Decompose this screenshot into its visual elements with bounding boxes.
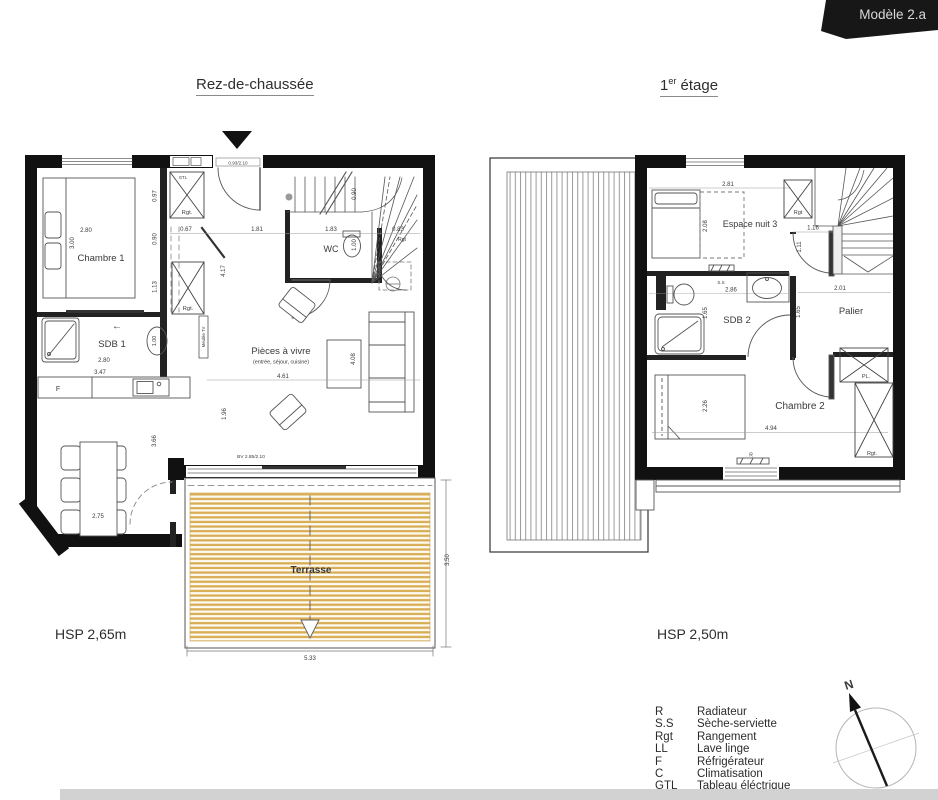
dim: 2.08 — [703, 220, 709, 232]
dim: 4.94 — [765, 426, 777, 432]
gf-sliding-door — [66, 310, 144, 313]
dim: 2.86 — [725, 288, 737, 294]
ff-sdb2-label: SDB 2 — [723, 315, 750, 326]
legend-row: RRadiateur — [655, 706, 790, 718]
legend-label: Climatisation — [697, 768, 763, 780]
ff-rgt-top-label: Rgt — [794, 210, 803, 216]
dim: 0.97 — [153, 190, 159, 202]
ff-door-gap — [789, 234, 797, 276]
dim: 5.33 — [304, 656, 316, 662]
dim: 1.11 — [797, 241, 803, 253]
gf-entry-door-size: 0.93/2.10 — [228, 161, 248, 166]
ff-palier-label: Palier — [839, 306, 863, 317]
dim: 0.90 — [352, 188, 358, 200]
legend-code: S.S — [655, 718, 697, 730]
legend-label: Sèche-serviette — [697, 718, 777, 730]
dim: 1.00 — [352, 239, 358, 251]
ff-rgt-bottom-label: Rgt. — [867, 451, 878, 457]
model-banner-label: Modèle 2.a — [859, 7, 926, 22]
ground-floor-title: Rez-de-chaussée — [196, 76, 314, 96]
legend-code: R — [655, 706, 697, 718]
entrance-arrow-icon — [222, 131, 252, 149]
dim: 2.81 — [722, 182, 734, 188]
compass-needle — [855, 710, 887, 786]
gf-bv-label: BV 2.85/2.10 — [237, 454, 265, 460]
dim: 3.00 — [70, 237, 76, 249]
gf-terrasse — [185, 478, 435, 648]
gf-stair-post — [286, 194, 293, 201]
first-floor-plan: Espace nuit 3 2.08 2.81 Rgt 1.16 1.11 S.… — [490, 155, 905, 552]
gf-stairs-door-swing — [378, 262, 406, 290]
dim: 0.90 — [153, 233, 159, 245]
first-floor-title-rest: étage — [676, 77, 718, 94]
ff-r-label: R — [749, 453, 753, 459]
ff-ledge — [636, 480, 900, 510]
gf-armchair-1 — [278, 286, 316, 323]
legend-row: RgtRangement — [655, 731, 790, 743]
ff-sdb2-door-gap — [746, 354, 790, 361]
legend-label: Lave linge — [697, 743, 749, 755]
gf-sdb1-label: SDB 1 — [98, 339, 125, 350]
legend-label: Rangement — [697, 731, 756, 743]
gf-window-chambre1 — [62, 155, 132, 168]
compass: N — [833, 677, 919, 788]
dim: 3.50 — [445, 554, 451, 566]
legend-label: Réfrigérateur — [697, 756, 764, 768]
gf-dining-table — [61, 442, 126, 536]
gf-bed — [43, 178, 135, 298]
ff-window-bottom — [723, 464, 779, 480]
gf-kitchen-counter — [38, 377, 190, 398]
dim: 4.17 — [221, 265, 227, 277]
first-floor-title: 1er étage — [660, 76, 718, 97]
legend-label: Radiateur — [697, 706, 747, 718]
dim: 2.80 — [80, 228, 92, 234]
legend-code: F — [655, 756, 697, 768]
gf-terrasse-label: Terrasse — [291, 565, 332, 576]
gf-wall-chamfer — [28, 505, 60, 547]
gf-wc-label: WC — [324, 244, 339, 254]
gf-entry-door-swing — [218, 168, 260, 210]
legend-code: Rgt — [655, 731, 697, 743]
gf-gtl-niche — [170, 156, 212, 167]
dim: 2.01 — [834, 286, 846, 292]
gf-sliding-arrow: ← — [112, 321, 122, 332]
dim: 3.47 — [94, 370, 106, 376]
dim: 3.66 — [152, 435, 158, 447]
gf-chambre1-door-leaf — [202, 228, 224, 257]
gf-shower — [42, 318, 79, 362]
dim: 1.13 — [153, 281, 159, 293]
compass-arrowhead-icon — [849, 693, 861, 712]
legend-code: LL — [655, 743, 697, 755]
dim: 1.65 — [796, 306, 802, 318]
gf-sofa — [369, 312, 414, 412]
legend-row: S.SSèche-serviette — [655, 718, 790, 730]
ff-ss-label: S.S — [717, 280, 724, 285]
dim: 2.26 — [703, 400, 709, 412]
hsp-ground-label: HSP 2,65m — [55, 626, 126, 642]
floorplan-drawing: 0.93/2.10 ← — [0, 0, 938, 800]
gf-bay-window — [186, 466, 418, 477]
ff-roof — [490, 158, 648, 552]
gf-terrace-door-swing — [130, 482, 172, 524]
ground-floor-plan: 0.93/2.10 ← — [25, 131, 451, 662]
floorplan-page: 0.93/2.10 ← — [0, 0, 938, 800]
gf-fridge-label: F — [56, 386, 60, 393]
dim: 1.16 — [807, 226, 819, 232]
legend-code: C — [655, 768, 697, 780]
gf-living-label: Pièces à vivre — [251, 346, 310, 357]
dim: 0.83 — [392, 227, 404, 233]
gf-armchair-2 — [269, 393, 307, 431]
ff-pl-label: PL. — [862, 374, 871, 380]
gf-living-sublabel: (entrée, séjour, cuisine) — [253, 360, 309, 366]
gf-rgt-entry-label: Rgt. — [182, 210, 193, 216]
gf-gtl-label: GTL — [179, 175, 188, 180]
dim: 1.00 — [152, 336, 158, 347]
ff-window-top — [686, 155, 744, 168]
dim: 4.61 — [277, 374, 289, 380]
gf-rgt-stairs-label: Rgt — [398, 237, 406, 243]
hsp-first-label: HSP 2,50m — [657, 626, 728, 642]
dim: 1.96 — [222, 408, 228, 420]
compass-north-label: N — [843, 677, 856, 693]
legend-row: LLLave linge — [655, 743, 790, 755]
legend-row: CClimatisation — [655, 768, 790, 780]
dim: 0.67 — [180, 227, 192, 233]
gf-tv-label: Meuble TV — [201, 327, 206, 348]
dim: 4.08 — [351, 353, 357, 365]
legend-row: FRéfrigérateur — [655, 756, 790, 768]
dim: 1.81 — [251, 227, 263, 233]
bottom-gray-bar — [60, 789, 938, 800]
dim: 2.75 — [92, 514, 104, 520]
dim: 1.65 — [703, 307, 709, 319]
ff-espace-label: Espace nuit 3 — [723, 219, 778, 229]
gf-rgt-hall-label: Rgt. — [183, 306, 194, 312]
gf-chambre1-label: Chambre 1 — [78, 253, 125, 264]
dim: 2.80 — [98, 358, 110, 364]
legend: RRadiateur S.SSèche-serviette RgtRangeme… — [655, 706, 790, 793]
ff-chambre2-label: Chambre 2 — [775, 401, 825, 412]
dim: 1.83 — [325, 227, 337, 233]
